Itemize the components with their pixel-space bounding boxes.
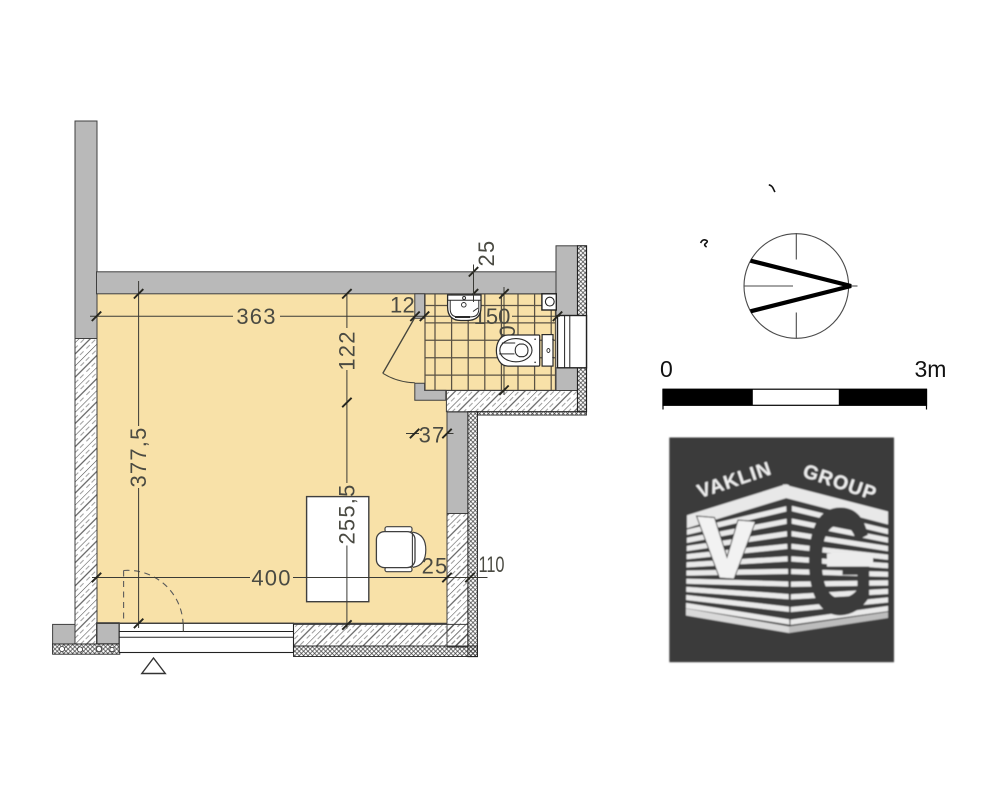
- svg-text:25: 25: [422, 554, 449, 579]
- svg-text:400: 400: [251, 565, 291, 590]
- svg-text:37: 37: [419, 422, 446, 447]
- svg-text:122: 122: [335, 330, 360, 370]
- svg-text:25: 25: [474, 240, 499, 267]
- svg-text:3m: 3m: [915, 356, 947, 382]
- svg-text:363: 363: [236, 304, 276, 329]
- svg-text:255,5: 255,5: [334, 483, 359, 544]
- svg-text:0: 0: [660, 356, 673, 382]
- svg-text:12: 12: [390, 293, 415, 318]
- svg-text:110: 110: [479, 552, 505, 577]
- svg-text:377,5: 377,5: [126, 426, 151, 487]
